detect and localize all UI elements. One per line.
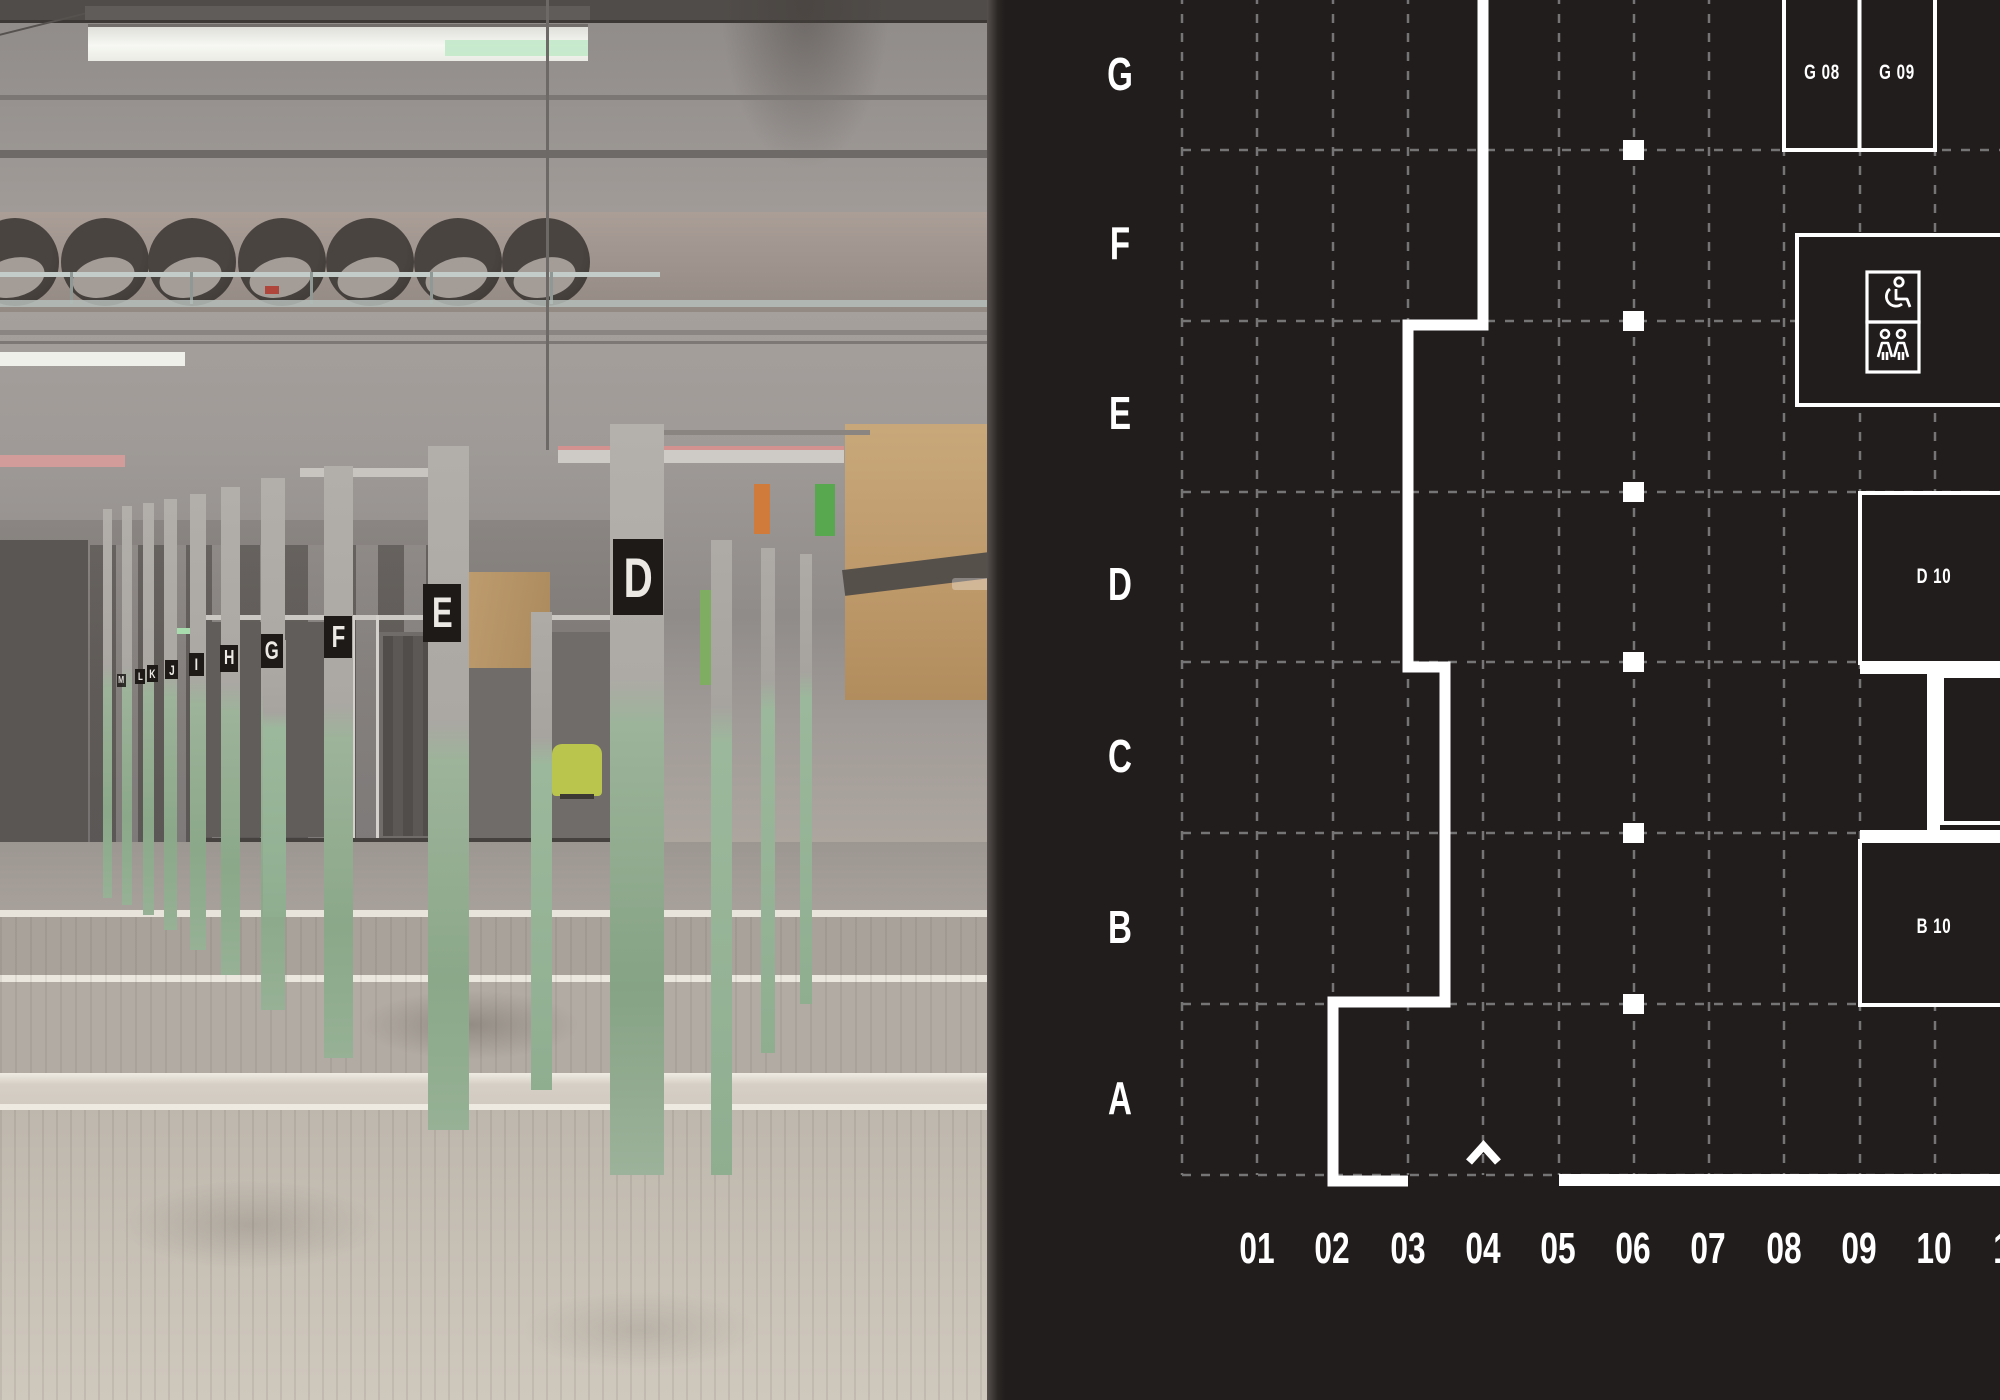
room-label-g09: G 09 xyxy=(1879,61,1915,85)
column-label-09: 09 xyxy=(1841,1224,1876,1274)
column-label-05: 05 xyxy=(1540,1224,1575,1274)
row-label-d: D xyxy=(1108,557,1132,611)
route-path xyxy=(1333,0,1483,1181)
column-label-01: 01 xyxy=(1239,1224,1274,1274)
column-label-06: 06 xyxy=(1615,1224,1650,1274)
room-label-b10: B 10 xyxy=(1917,915,1952,939)
column-label-03: 03 xyxy=(1390,1224,1425,1274)
column-label-10: 10 xyxy=(1916,1224,1951,1274)
column-label-11: 11 xyxy=(1993,1224,2000,1274)
row-label-a: A xyxy=(1108,1071,1132,1125)
row-label-c: C xyxy=(1108,729,1132,783)
column-label-07: 07 xyxy=(1690,1224,1725,1274)
column-label-04: 04 xyxy=(1465,1224,1500,1274)
room-c10[interactable] xyxy=(1942,676,2000,823)
corridor-wall xyxy=(1927,661,1940,833)
column-label-08: 08 xyxy=(1766,1224,1801,1274)
row-label-b: B xyxy=(1108,900,1132,954)
row-label-g: G xyxy=(1107,47,1133,101)
room-facilities[interactable] xyxy=(1797,235,2000,405)
room-label-d10: D 10 xyxy=(1917,565,1952,589)
floor-plan-drawing xyxy=(0,0,2000,1400)
row-label-e: E xyxy=(1109,386,1131,440)
row-label-f: F xyxy=(1110,216,1130,270)
hall-map-page: D E F G H I J K L M xyxy=(0,0,2000,1400)
column-label-02: 02 xyxy=(1314,1224,1349,1274)
room-label-g08: G 08 xyxy=(1804,61,1840,85)
grid-node-squares xyxy=(1623,140,1644,1014)
